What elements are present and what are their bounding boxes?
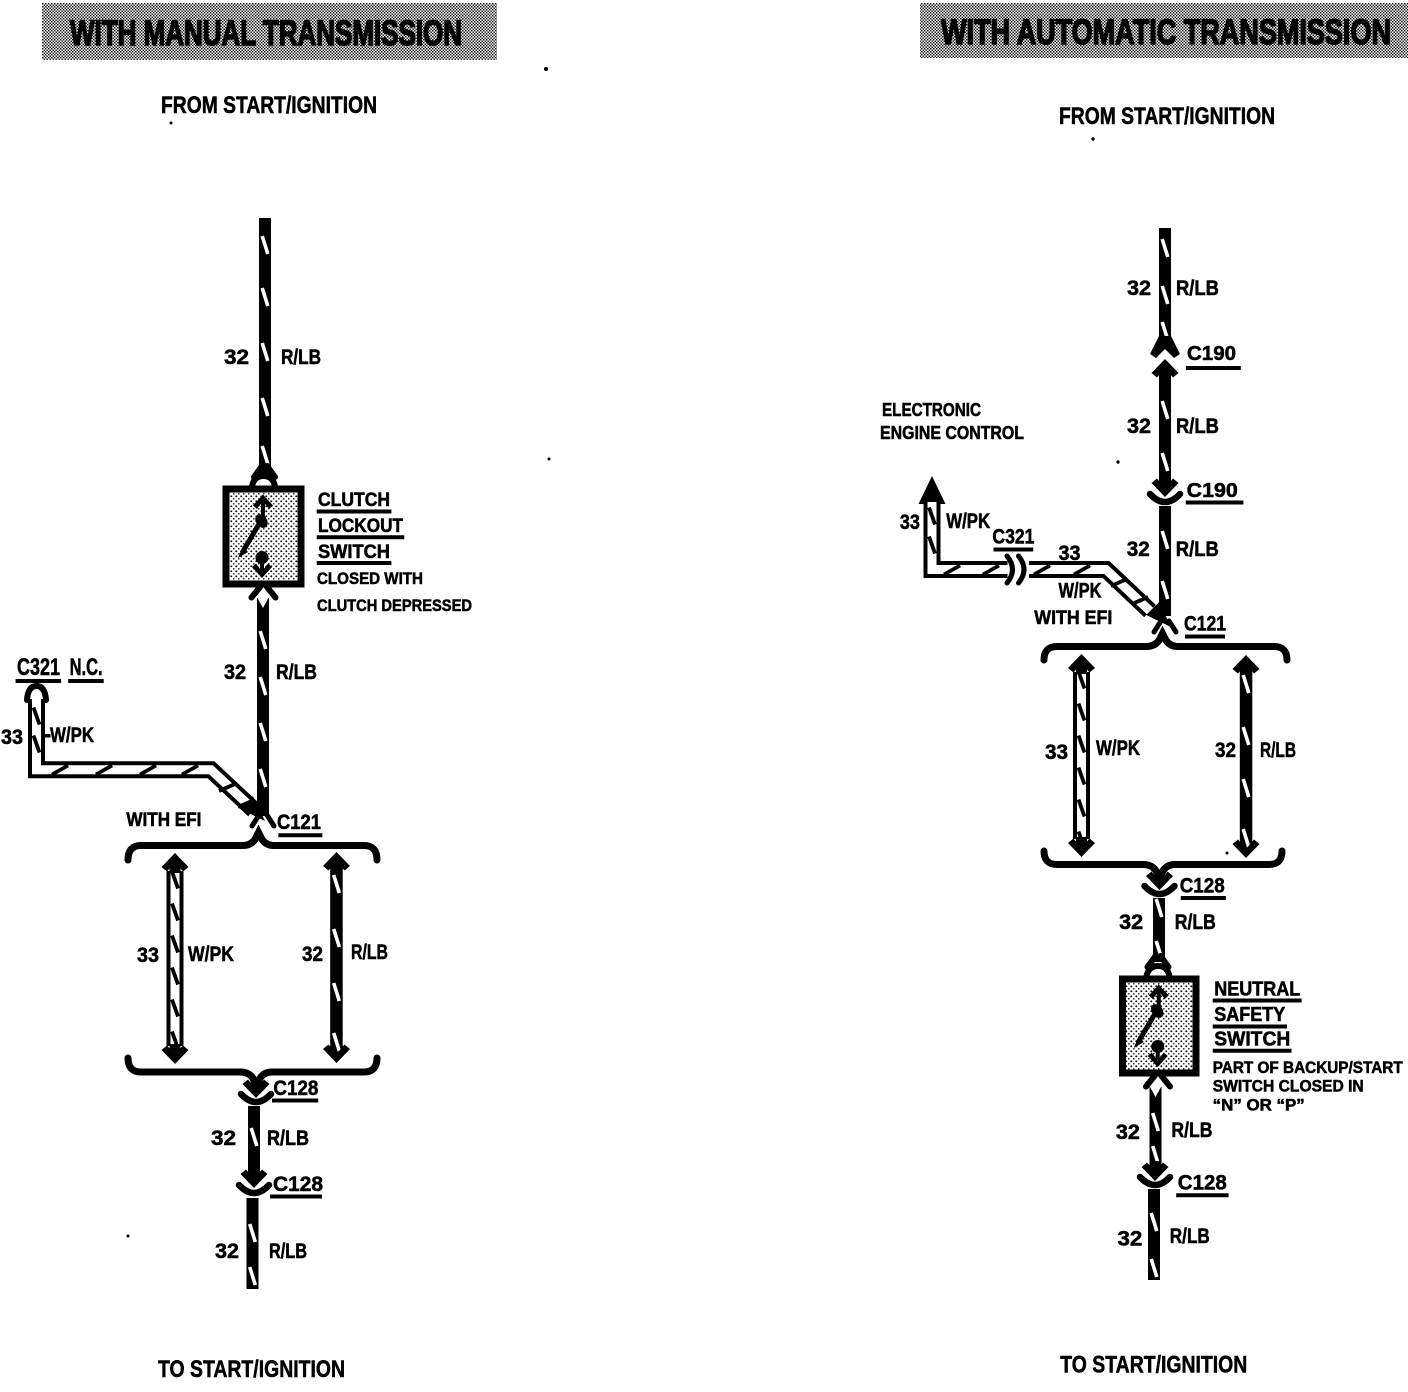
svg-text:32: 32 [1119,911,1143,934]
svg-text:C321: C321 [992,526,1034,549]
svg-text:SWITCH: SWITCH [318,542,390,563]
svg-text:R/LB: R/LB [269,1240,307,1263]
svg-text:CLUTCH DEPRESSED: CLUTCH DEPRESSED [317,597,472,615]
svg-text:TO START/IGNITION: TO START/IGNITION [1060,1351,1247,1378]
svg-text:R/LB: R/LB [281,346,321,369]
svg-text:R/LB: R/LB [351,941,388,964]
svg-text:33: 33 [1045,741,1068,764]
svg-text:32: 32 [1127,277,1151,300]
svg-text:W/PK: W/PK [1096,737,1140,760]
svg-text:33: 33 [1,726,23,749]
svg-text:R/LB: R/LB [1171,1119,1212,1142]
svg-text:32: 32 [1117,1227,1142,1250]
svg-text:C190: C190 [1187,343,1236,365]
svg-text:LOCKOUT: LOCKOUT [318,516,403,537]
svg-text:32: 32 [1116,1121,1140,1144]
svg-text:R/LB: R/LB [1175,911,1216,934]
svg-text:C121: C121 [1184,613,1226,636]
svg-text:32: 32 [215,1240,239,1263]
svg-text:W/PK: W/PK [50,724,94,747]
svg-text:R/LB: R/LB [267,1127,309,1150]
svg-text:32: 32 [224,346,249,369]
svg-text:W/PK: W/PK [946,510,990,533]
svg-text:C128: C128 [273,1173,323,1196]
svg-text:WITH EFI: WITH EFI [1034,608,1112,629]
svg-text:33: 33 [137,944,159,967]
svg-text:C321: C321 [17,654,60,681]
svg-text:CLUTCH: CLUTCH [318,490,390,511]
svg-text:R/LB: R/LB [1260,739,1296,762]
svg-text:33: 33 [900,511,920,534]
svg-text:WITH EFI: WITH EFI [126,810,201,831]
svg-text:C190: C190 [1187,480,1238,502]
svg-text:ELECTRONIC: ELECTRONIC [882,400,981,420]
svg-text:CLOSED WITH: CLOSED WITH [317,570,423,588]
svg-text:W/PK: W/PK [1059,580,1102,603]
svg-text:W/PK: W/PK [188,943,234,966]
svg-text:32: 32 [1127,538,1150,561]
svg-text:C128: C128 [1180,875,1225,898]
svg-text:TO START/IGNITION: TO START/IGNITION [158,1356,345,1383]
svg-text:32: 32 [302,943,323,966]
svg-text:WITH MANUAL TRANSMISSION: WITH MANUAL TRANSMISSION [70,14,462,53]
svg-text:“N” OR “P”: “N” OR “P” [1213,1096,1305,1114]
svg-text:SWITCH CLOSED IN: SWITCH CLOSED IN [1213,1077,1364,1095]
svg-text:N.C.: N.C. [70,654,103,681]
svg-text:R/LB: R/LB [1170,1225,1210,1248]
svg-text:PART OF BACKUP/START: PART OF BACKUP/START [1213,1059,1403,1077]
svg-text:FROM START/IGNITION: FROM START/IGNITION [161,92,377,119]
svg-text:32: 32 [1215,739,1236,762]
svg-text:WITH AUTOMATIC TRANSMISSION: WITH AUTOMATIC TRANSMISSION [941,13,1391,52]
svg-text:R/LB: R/LB [276,661,317,684]
svg-text:R/LB: R/LB [1176,277,1219,300]
svg-text:C128: C128 [1178,1172,1227,1195]
svg-text:NEUTRAL: NEUTRAL [1214,979,1300,1001]
svg-text:C128: C128 [273,1077,318,1100]
svg-text:C121: C121 [277,811,321,834]
svg-text:ENGINE CONTROL: ENGINE CONTROL [880,423,1024,443]
svg-text:33: 33 [1059,542,1081,565]
svg-text:32: 32 [211,1127,236,1150]
svg-text:SWITCH: SWITCH [1214,1029,1290,1051]
svg-text:32: 32 [224,661,246,684]
svg-text:FROM START/IGNITION: FROM START/IGNITION [1059,103,1275,130]
svg-text:R/LB: R/LB [1176,538,1219,561]
svg-text:32: 32 [1127,415,1151,438]
svg-text:R/LB: R/LB [1176,415,1219,438]
svg-text:SAFETY: SAFETY [1214,1004,1286,1026]
